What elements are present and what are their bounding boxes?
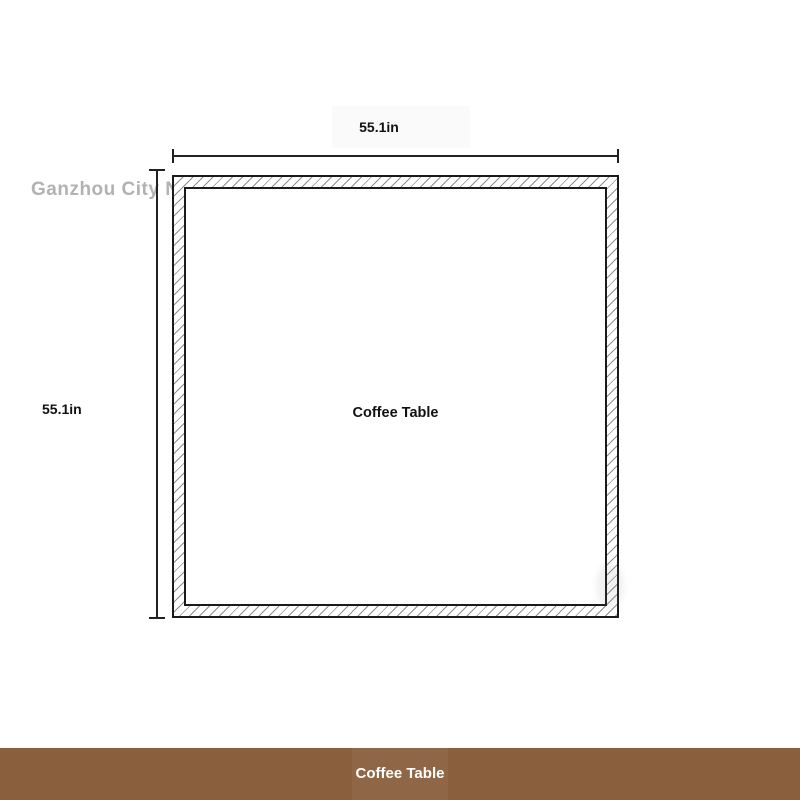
- side-dimension-tick-bottom: [149, 617, 165, 619]
- top-dimension-tick-right: [617, 149, 619, 163]
- watermark-smudge: [596, 563, 624, 609]
- footer-bar: Coffee Table: [0, 748, 800, 800]
- side-dimension-label: 55.1in: [42, 401, 82, 417]
- table-item-label: Coffee Table: [186, 405, 605, 421]
- watermark-company-english: Ganzhou City No: [31, 179, 192, 201]
- table-top-outline: Coffee Table: [172, 175, 619, 618]
- table-top-surface: Coffee Table: [184, 187, 607, 606]
- side-dimension-tick-top: [149, 169, 165, 171]
- top-dimension-line: [172, 155, 619, 157]
- top-dimension-label: 55.1in: [339, 119, 419, 135]
- footer-title: Coffee Table: [0, 748, 800, 800]
- top-dimension-tick-left: [172, 149, 174, 163]
- side-dimension-line: [156, 170, 158, 619]
- product-dimension-image: Ganzhou City No 桃丁家具有限公司 55.1in 55.1in C…: [0, 0, 800, 800]
